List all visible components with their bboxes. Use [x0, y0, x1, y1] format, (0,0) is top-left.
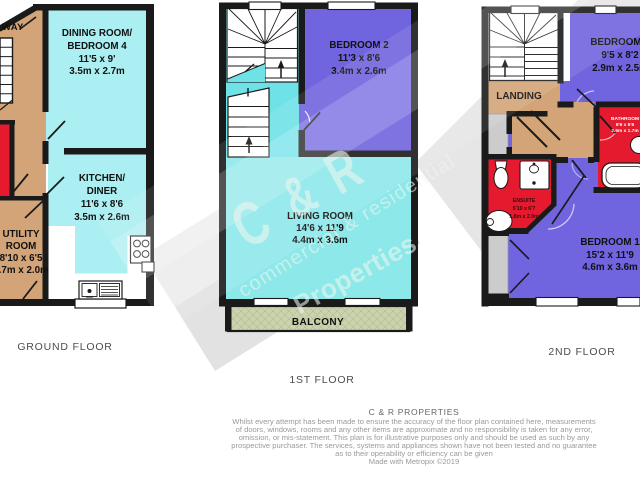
svg-text:GROUND FLOOR: GROUND FLOOR: [17, 341, 112, 353]
svg-text:8'6 x 5'6: 8'6 x 5'6: [616, 122, 635, 128]
svg-text:3.4m x 2.6m: 3.4m x 2.6m: [331, 66, 387, 77]
svg-text:UTILITY: UTILITY: [2, 229, 39, 240]
svg-text:C & R PROPERTIES: C & R PROPERTIES: [369, 407, 460, 417]
svg-text:3.5m x 2.7m: 3.5m x 2.7m: [69, 66, 125, 77]
svg-text:Made with Metropix ©2019: Made with Metropix ©2019: [369, 457, 459, 466]
svg-text:3.5m x 2.6m: 3.5m x 2.6m: [74, 212, 130, 223]
svg-text:BATHROOM: BATHROOM: [611, 116, 639, 122]
svg-text:BEDROOM 4: BEDROOM 4: [67, 41, 127, 52]
svg-text:DINER: DINER: [87, 186, 117, 197]
svg-text:1ST FLOOR: 1ST FLOOR: [289, 374, 354, 386]
svg-text:BALCONY: BALCONY: [292, 317, 344, 328]
svg-text:DINING ROOM/: DINING ROOM/: [62, 28, 132, 39]
svg-text:11'3 x 8'6: 11'3 x 8'6: [338, 53, 381, 64]
svg-text:8'10 x 6'5: 8'10 x 6'5: [0, 253, 43, 264]
svg-text:ROOM: ROOM: [6, 241, 36, 252]
svg-text:5'10 x 6'7: 5'10 x 6'7: [513, 206, 536, 212]
svg-text:11'6 x 8'6: 11'6 x 8'6: [81, 199, 124, 210]
svg-text:HALLWAY: HALLWAY: [0, 22, 24, 33]
svg-text:2.9m x 2.5m: 2.9m x 2.5m: [592, 63, 640, 74]
svg-text:LANDING: LANDING: [496, 91, 542, 102]
svg-text:4.6m x 3.6m: 4.6m x 3.6m: [582, 262, 638, 273]
svg-text:2ND FLOOR: 2ND FLOOR: [548, 346, 615, 358]
svg-text:9'5 x 8'2: 9'5 x 8'2: [601, 50, 639, 61]
svg-text:BEDROOM 3: BEDROOM 3: [590, 37, 640, 48]
svg-text:2.7m x 2.0m: 2.7m x 2.0m: [0, 265, 49, 276]
svg-text:1.8m x 2.0m: 1.8m x 2.0m: [509, 214, 539, 220]
svg-text:15'2 x 11'9: 15'2 x 11'9: [586, 250, 634, 261]
svg-text:KITCHEN/: KITCHEN/: [79, 173, 126, 184]
svg-text:BEDROOM 1: BEDROOM 1: [580, 237, 640, 248]
svg-text:BEDROOM 2: BEDROOM 2: [329, 40, 389, 51]
svg-text:ENSUITE: ENSUITE: [513, 198, 536, 204]
svg-text:11'5 x 9': 11'5 x 9': [79, 54, 116, 65]
svg-text:2.6m x 1.7m: 2.6m x 1.7m: [611, 128, 638, 134]
